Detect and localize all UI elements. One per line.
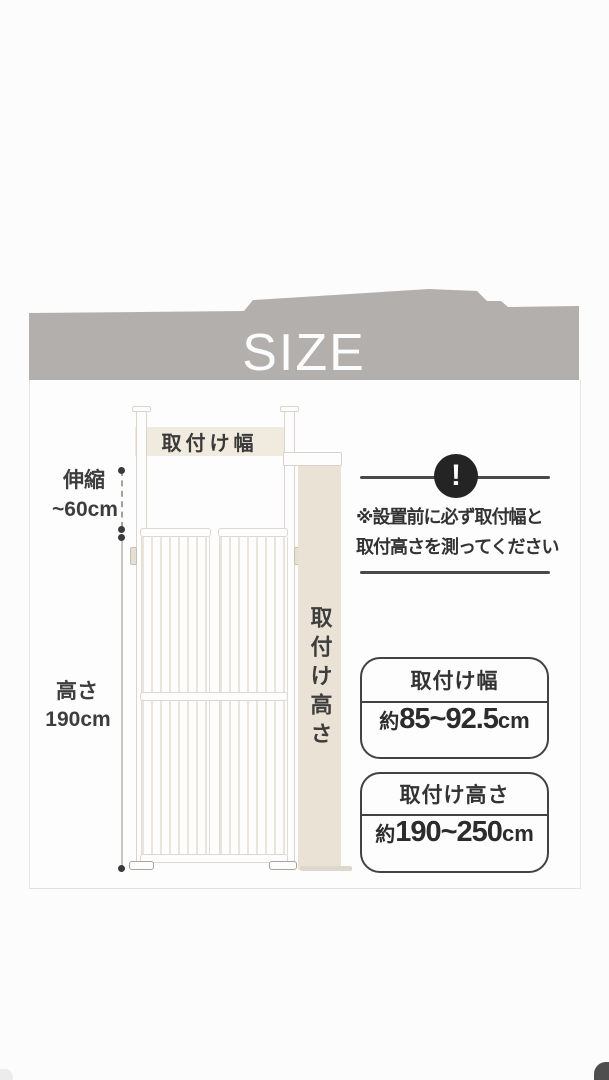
spec-box-height: 取付け高さ 約190~250cm bbox=[360, 772, 549, 873]
notice-divider-bottom bbox=[360, 571, 550, 574]
installation-width-band: 取付け幅 bbox=[135, 427, 284, 456]
extend-measure-dot-bottom2 bbox=[118, 534, 125, 541]
bottom-left-corner-artifact bbox=[0, 1069, 13, 1080]
height-label-top: 高さ bbox=[45, 679, 109, 705]
gate-bottom-rail bbox=[140, 854, 288, 863]
exclamation-icon: ! bbox=[434, 454, 478, 498]
spec-width-prefix: 約 bbox=[379, 705, 399, 734]
wall-height-vertical-label: 取付け高さ bbox=[298, 598, 341, 758]
extend-label-bottom: ~60cm bbox=[45, 497, 125, 523]
extend-label-top: 伸縮 bbox=[52, 468, 116, 494]
gate-foot-right bbox=[269, 861, 297, 870]
spec-height-range: 190~250 bbox=[395, 816, 502, 849]
spec-height-prefix: 約 bbox=[375, 818, 395, 847]
wall-column-base-shadow bbox=[300, 866, 352, 871]
tension-knob-left bbox=[130, 547, 137, 565]
notice-text-line1: ※設置前に必ず取付幅と bbox=[356, 503, 556, 529]
gate-foot-left bbox=[129, 861, 154, 870]
spec-box-height-value: 約190~250cm bbox=[362, 816, 547, 871]
gate-top-rail-right bbox=[218, 528, 288, 537]
spec-box-width-value: 約85~92.5cm bbox=[362, 703, 547, 758]
spec-box-width-label: 取付け幅 bbox=[362, 659, 547, 703]
spec-width-unit: cm bbox=[498, 708, 530, 734]
spec-box-height-label: 取付け高さ bbox=[362, 774, 547, 816]
next-image-corner bbox=[594, 1062, 609, 1080]
extend-measure-dot-bottom1 bbox=[118, 526, 125, 533]
wall-column-cap bbox=[283, 452, 342, 466]
spec-width-range: 85~92.5 bbox=[399, 703, 498, 736]
extend-measure-dot-top bbox=[118, 467, 125, 474]
height-measure-dot-bottom bbox=[118, 865, 125, 872]
height-label-bottom: 190cm bbox=[40, 707, 116, 733]
spec-box-width: 取付け幅 約85~92.5cm bbox=[360, 657, 549, 759]
size-banner-title: SIZE bbox=[29, 327, 579, 379]
spec-height-unit: cm bbox=[502, 821, 534, 847]
gate-middle-rail bbox=[140, 692, 288, 701]
product-infographic-page: SIZE 取付け幅 取付け高さ 伸縮 ~60cm 高さ 190cm ! ※設置前… bbox=[0, 0, 609, 1080]
gate-top-rail-left bbox=[140, 528, 211, 537]
height-measure-line bbox=[121, 541, 123, 867]
notice-text-line2: 取付高さを測ってください bbox=[356, 533, 556, 559]
